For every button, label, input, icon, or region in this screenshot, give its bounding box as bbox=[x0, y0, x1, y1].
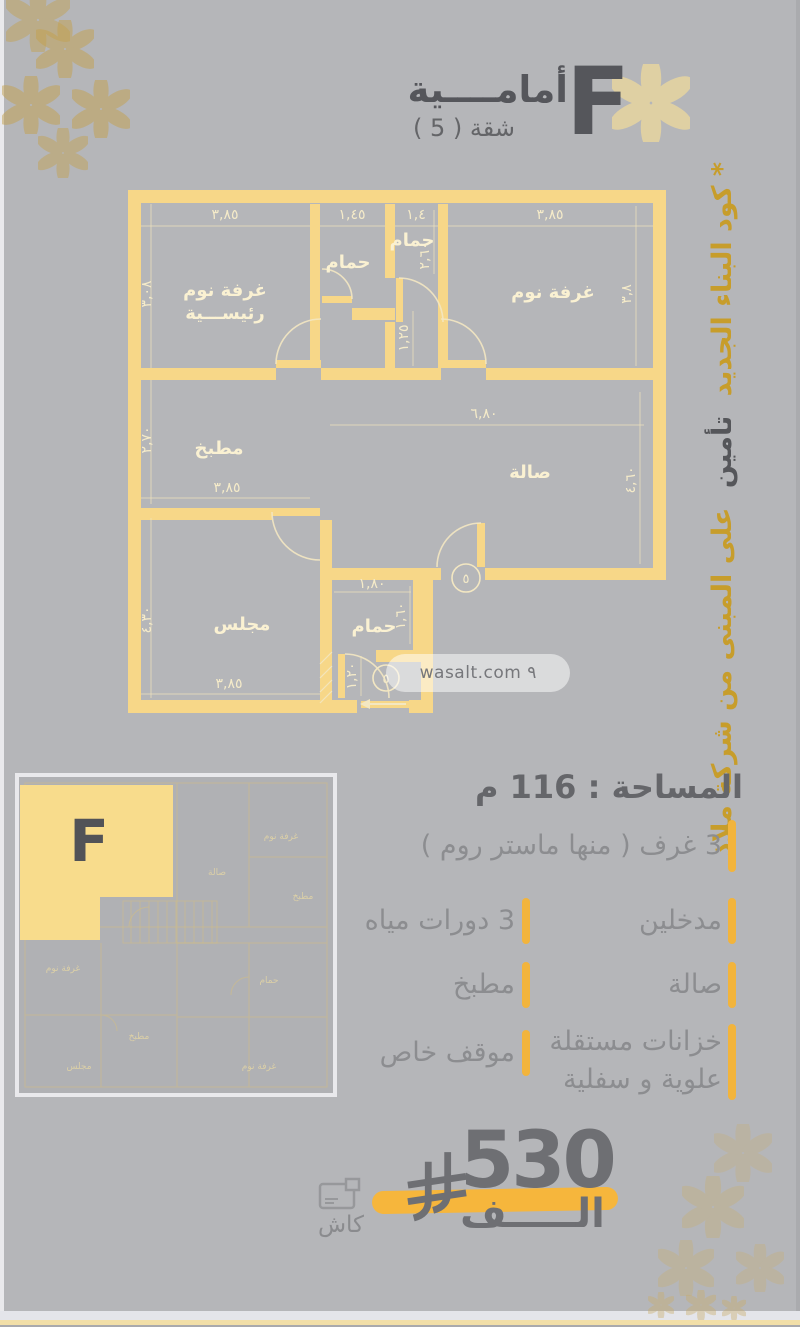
flower-icon bbox=[736, 1244, 784, 1292]
left-edge-strip bbox=[0, 0, 4, 1327]
flower-icon bbox=[38, 128, 88, 178]
thumbnail-plan: غرفة نوم مطبخ صالة حمام غرفة نوم مجلس غر… bbox=[19, 777, 333, 1093]
room-master-line1: غرفة نوم bbox=[183, 280, 267, 301]
flower-icon bbox=[658, 1240, 714, 1296]
floor-plan: ٥ ٥ ٣,٨٥ ١,٤٥ bbox=[124, 186, 670, 717]
dim-right-hall: ٤,٦٠ bbox=[623, 466, 639, 493]
stairs-hatch bbox=[123, 901, 217, 943]
thumb-label: حمام bbox=[259, 976, 278, 986]
room-bedroom: غرفة نوم bbox=[511, 282, 595, 303]
dim-top-bath2: ١,٤ bbox=[406, 207, 426, 223]
list-item-line2: علوية و سفلية bbox=[563, 1064, 722, 1095]
brochure-page: F أمامــــية شقة ( 5 ) * كود البناء الجد… bbox=[0, 0, 800, 1327]
flower-icon bbox=[72, 80, 130, 138]
dim-top-bedroom: ٣,٨٥ bbox=[536, 207, 563, 223]
dim-right-bedroom: ٣,٨ bbox=[619, 284, 635, 304]
cash-icon bbox=[316, 1176, 366, 1216]
dim-bath3-door: ١,٢٠ bbox=[344, 662, 360, 689]
unit-letter: F bbox=[566, 56, 630, 150]
door-tag: ٥ bbox=[452, 564, 480, 592]
thumb-label: مطبخ bbox=[129, 1032, 150, 1042]
room-bath1: حمام bbox=[326, 252, 371, 273]
list-bullet-bar bbox=[728, 898, 736, 944]
side-note-part1: * كود البناء الجديد bbox=[707, 162, 738, 396]
list-item: 3 دورات مياه bbox=[365, 905, 515, 936]
thumb-label: مجلس bbox=[66, 1062, 91, 1072]
price-amount: 530 bbox=[460, 1122, 605, 1200]
area-title: المساحة : 116 م bbox=[475, 768, 743, 806]
list-item: صالة bbox=[668, 969, 722, 1000]
list-bullet-bar bbox=[522, 898, 530, 944]
list-bullet-bar bbox=[522, 962, 530, 1008]
flower-icon bbox=[6, 0, 70, 52]
thumb-label: غرفة نوم bbox=[242, 1062, 277, 1072]
room-bath3: حمام bbox=[352, 616, 397, 637]
list-item: خزانات مستقلة bbox=[549, 1026, 722, 1057]
dim-left-kitchen: ٢,٧٠ bbox=[139, 426, 155, 453]
thumb-label: غرفة نوم bbox=[46, 964, 81, 974]
side-note-part2: تأمين bbox=[701, 416, 745, 488]
list-bullet-bar bbox=[728, 820, 736, 872]
flower-icon bbox=[714, 1124, 772, 1182]
flower-icon bbox=[2, 76, 60, 134]
flower-icon bbox=[682, 1176, 744, 1238]
dim-majlis-width: ٣,٨٥ bbox=[215, 676, 242, 692]
room-kitchen: مطبخ bbox=[195, 438, 244, 459]
thumb-label: صالة bbox=[208, 868, 226, 878]
door-leaves bbox=[272, 278, 486, 708]
dim-hall-width: ٦,٨٠ bbox=[470, 406, 497, 422]
room-majlis: مجلس bbox=[214, 614, 271, 635]
list-item: مدخلين bbox=[639, 905, 722, 936]
thumb-label: غرفة نوم bbox=[264, 832, 299, 842]
cash-label: كاش bbox=[308, 1212, 374, 1238]
right-edge-strip bbox=[796, 0, 800, 1327]
unit-f-letter: F bbox=[69, 807, 109, 875]
list-bullet-bar bbox=[728, 1024, 736, 1100]
dim-kitchen-width: ٣,٨٥ bbox=[213, 480, 240, 496]
page-title: أمامــــية bbox=[360, 68, 568, 111]
watermark: wasalt.com ٩ bbox=[386, 654, 570, 692]
price-thousand: الـــــف bbox=[460, 1192, 605, 1236]
room-master-line2: رئيســـية bbox=[185, 303, 265, 324]
dim-left-majlis: ٤,٣٠ bbox=[139, 606, 155, 633]
thumb-label: مطبخ bbox=[293, 892, 314, 902]
list-bullet-bar bbox=[522, 1030, 530, 1076]
bottom-white-band bbox=[0, 1311, 800, 1320]
room-bath2: حمام bbox=[390, 230, 435, 251]
page-subtitle: شقة ( 5 ) bbox=[360, 114, 568, 142]
dim-top-master: ٣,٨٥ bbox=[211, 207, 238, 223]
list-item: 3 غرف ( منها ماستر روم ) bbox=[421, 830, 722, 861]
flower-icon bbox=[36, 20, 94, 78]
list-bullet-bar bbox=[728, 962, 736, 1008]
door-tag-number: ٥ bbox=[463, 572, 470, 587]
building-thumbnail: غرفة نوم مطبخ صالة حمام غرفة نوم مجلس غر… bbox=[15, 773, 337, 1097]
side-note: * كود البناء الجديد تأمين على المبنى من … bbox=[701, 162, 745, 762]
dim-hall-entry: ١,٢٥ bbox=[396, 324, 412, 351]
list-item: موقف خاص bbox=[380, 1037, 515, 1068]
dim-top-bath1: ١,٤٥ bbox=[338, 207, 365, 223]
dim-left-master: ٣,٠٨ bbox=[139, 280, 155, 307]
room-hall: صالة bbox=[509, 462, 551, 483]
dim-bath3-width: ١,٨٠ bbox=[358, 576, 385, 592]
list-item: مطبخ bbox=[453, 969, 515, 1000]
